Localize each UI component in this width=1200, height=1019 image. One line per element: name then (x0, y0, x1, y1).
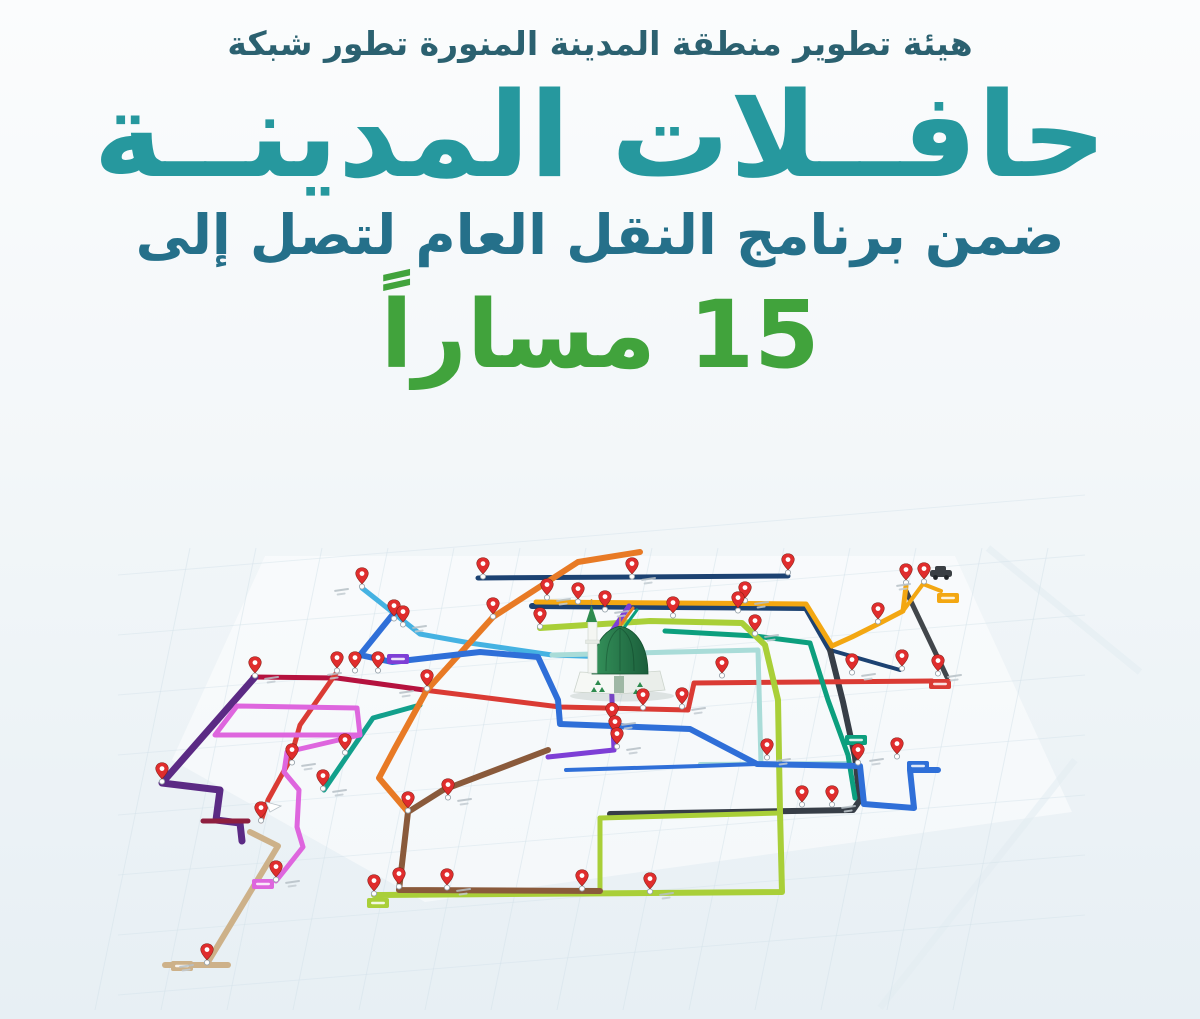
station-dot (537, 624, 542, 629)
station-dot (342, 750, 347, 755)
station-dot (719, 673, 724, 678)
route-badge-text (933, 683, 947, 685)
station-dot (647, 889, 652, 894)
station-dot (935, 671, 940, 676)
poster-subtitle: ضمن برنامج النقل العام لتصل إلى (0, 203, 1200, 267)
station-dot (579, 886, 584, 891)
station-dot (480, 574, 485, 579)
station-dot (424, 686, 429, 691)
station-dot (371, 891, 376, 896)
station-dot (396, 884, 401, 889)
route-badge-text (256, 883, 270, 885)
poster-header: هيئة تطوير منطقة المدينة المنورة تطور شب… (0, 0, 1200, 390)
station-dot (614, 744, 619, 749)
station-dot (575, 599, 580, 604)
station-dot (405, 808, 410, 813)
station-dot (289, 760, 294, 765)
routes-count: 15 مساراً (0, 281, 1200, 390)
map-pin (368, 875, 381, 891)
poster: { "poster": { "tagline": "هيئة تطوير منط… (0, 0, 1200, 1019)
station-dot (735, 608, 740, 613)
poster-tagline: هيئة تطوير منطقة المدينة المنورة تطور شب… (0, 24, 1200, 63)
station-dot (375, 668, 380, 673)
station-dot (679, 704, 684, 709)
station-dot (875, 619, 880, 624)
minaret-balcony (586, 640, 600, 644)
station-dot (799, 802, 804, 807)
station-dot (204, 960, 209, 965)
station-dot (273, 877, 278, 882)
station-dot (855, 760, 860, 765)
station-dot (445, 795, 450, 800)
route-badge-text (391, 658, 405, 660)
station-dot (899, 666, 904, 671)
station-dot (444, 885, 449, 890)
station-dot (490, 614, 495, 619)
station-dot (764, 755, 769, 760)
station-dot (602, 607, 607, 612)
tan-line-route (208, 832, 278, 962)
station-dot (894, 754, 899, 759)
map-pin (576, 870, 589, 886)
station-dot (352, 668, 357, 673)
mosque-door (614, 676, 624, 693)
station-dot (359, 584, 364, 589)
station-dot (544, 595, 549, 600)
station-dot (159, 779, 164, 784)
station-dot (320, 786, 325, 791)
station-dot (640, 705, 645, 710)
station-label (285, 880, 301, 888)
station-dot (670, 613, 675, 618)
station-dot (921, 579, 926, 584)
poster-title: حافــلات المدينــة (0, 69, 1200, 201)
station-dot (829, 802, 834, 807)
grid-line (118, 915, 1085, 995)
route-badge-text (371, 902, 385, 904)
map-pin (644, 873, 657, 889)
route-badge-text (911, 765, 925, 767)
ground-crease (988, 548, 1140, 672)
station-dot (252, 673, 257, 678)
minaret (588, 622, 597, 673)
station-dot (849, 670, 854, 675)
station-dot (258, 818, 263, 823)
station-dot (752, 631, 757, 636)
station-dot (785, 570, 790, 575)
station-dot (391, 616, 396, 621)
route-badge-text (941, 597, 955, 599)
station-dot (400, 622, 405, 627)
station-dot (334, 668, 339, 673)
station-dot (629, 574, 634, 579)
route-badge-text (849, 739, 863, 741)
